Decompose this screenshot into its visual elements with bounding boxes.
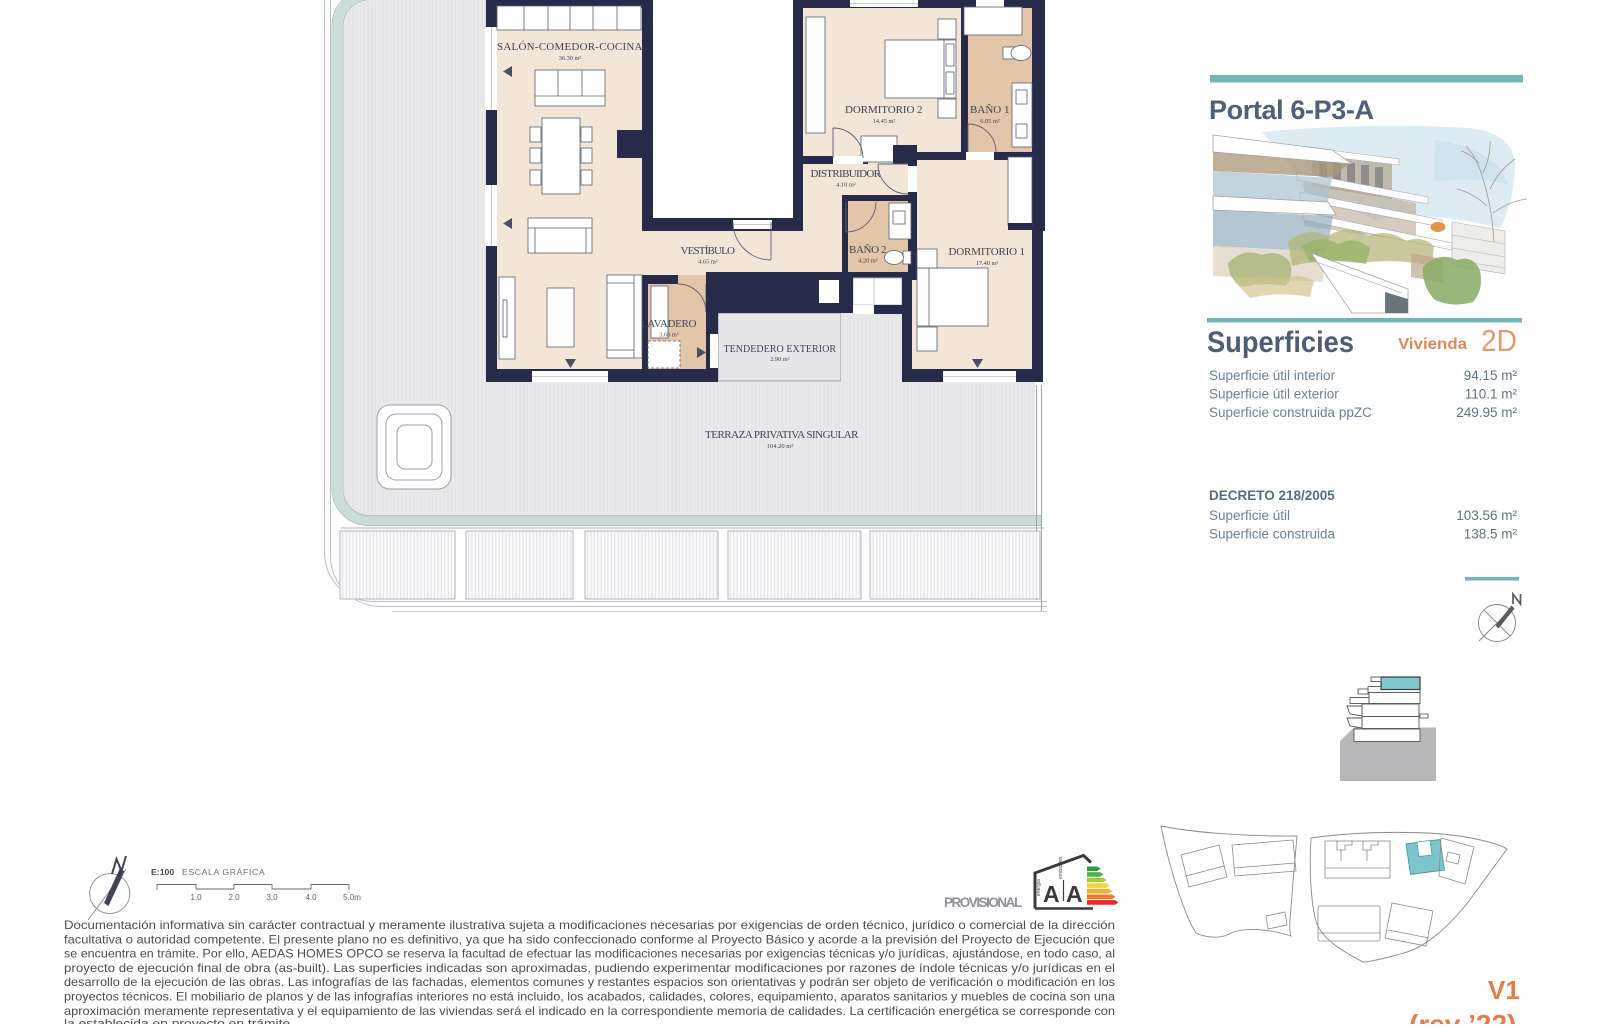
svg-text:TENDEDERO EXTERIOR: TENDEDERO EXTERIOR bbox=[724, 344, 837, 355]
svg-text:2.90 m²: 2.90 m² bbox=[770, 356, 789, 363]
svg-text:36.30 m²: 36.30 m² bbox=[559, 55, 582, 62]
svg-text:3.60 m²: 3.60 m² bbox=[659, 332, 678, 339]
svg-text:se encuentra en trámite. Por e: se encuentra en trámite. Por ello, AEDAS… bbox=[64, 947, 1115, 961]
svg-text:proyectos técnicos. El mobilia: proyectos técnicos. El mobiliario de pla… bbox=[64, 990, 1115, 1004]
svg-text:1.0: 1.0 bbox=[190, 893, 202, 902]
svg-text:Superficies: Superficies bbox=[1207, 326, 1354, 359]
svg-text:Superficie construida: Superficie construida bbox=[1209, 527, 1336, 542]
svg-text:(rev ’22): (rev ’22) bbox=[1409, 1009, 1516, 1024]
svg-text:249.95 m²: 249.95 m² bbox=[1456, 405, 1517, 420]
svg-text:PROVISIONAL: PROVISIONAL bbox=[944, 895, 1023, 910]
svg-text:TERRAZA PRIVATIVA SINGULAR: TERRAZA PRIVATIVA SINGULAR bbox=[705, 429, 859, 441]
svg-text:Superficie útil exterior: Superficie útil exterior bbox=[1209, 387, 1339, 402]
svg-text:proyecto de ejecución final de: proyecto de ejecución final de obra (as-… bbox=[64, 961, 1115, 975]
svg-text:103.56 m²: 103.56 m² bbox=[1456, 508, 1517, 523]
svg-text:facultativa o autoridad compet: facultativa o autoridad competente. El p… bbox=[64, 932, 1115, 946]
svg-text:DORMITORIO 2: DORMITORIO 2 bbox=[845, 104, 923, 116]
svg-text:desarrollo de la ejecución de: desarrollo de la ejecución de las obras.… bbox=[64, 975, 1115, 989]
svg-text:Portal 6-P3-A: Portal 6-P3-A bbox=[1209, 95, 1374, 125]
svg-text:A: A bbox=[1043, 881, 1060, 907]
svg-text:104.20 m²: 104.20 m² bbox=[767, 443, 794, 450]
svg-text:2D: 2D bbox=[1481, 323, 1517, 358]
svg-text:2.0: 2.0 bbox=[228, 893, 240, 902]
svg-text:110.1 m²: 110.1 m² bbox=[1465, 387, 1518, 402]
svg-text:Superficie útil: Superficie útil bbox=[1209, 508, 1290, 523]
svg-text:BAÑO 1: BAÑO 1 bbox=[970, 104, 1010, 116]
svg-text:138.5 m²: 138.5 m² bbox=[1464, 527, 1518, 542]
svg-text:6.05 m²: 6.05 m² bbox=[980, 118, 999, 125]
svg-text:energía: energía bbox=[1036, 879, 1042, 896]
svg-text:DORMITORIO 1: DORMITORIO 1 bbox=[949, 246, 1026, 258]
svg-text:4.10 m²: 4.10 m² bbox=[836, 182, 855, 189]
svg-text:A: A bbox=[1066, 881, 1083, 907]
svg-text:la establecida en proyecto en: la establecida en proyecto en trámite. bbox=[64, 1016, 294, 1024]
svg-text:ESCALA GRÁFICA: ESCALA GRÁFICA bbox=[182, 867, 265, 877]
svg-text:emisiones: emisiones bbox=[1058, 856, 1064, 879]
svg-text:SALÓN-COMEDOR-COCINA: SALÓN-COMEDOR-COCINA bbox=[497, 41, 643, 53]
svg-text:17.40 m²: 17.40 m² bbox=[976, 260, 999, 267]
svg-text:3.0: 3.0 bbox=[266, 893, 278, 902]
svg-text:4.65 m²: 4.65 m² bbox=[698, 259, 717, 266]
svg-text:Superficie construida ppZC: Superficie construida ppZC bbox=[1209, 405, 1372, 420]
svg-text:4.20 m²: 4.20 m² bbox=[858, 258, 877, 265]
svg-text:Superficie útil interior: Superficie útil interior bbox=[1209, 368, 1336, 383]
svg-text:V1: V1 bbox=[1488, 975, 1520, 1005]
svg-text:DECRETO 218/2005: DECRETO 218/2005 bbox=[1209, 488, 1335, 503]
svg-text:94.15 m²: 94.15 m² bbox=[1464, 368, 1518, 383]
svg-text:Vivienda: Vivienda bbox=[1398, 336, 1467, 353]
svg-text:4.0: 4.0 bbox=[305, 893, 317, 902]
svg-text:Documentación informativa sin: Documentación informativa sin carácter c… bbox=[64, 918, 1115, 932]
svg-text:LAVADERO: LAVADERO bbox=[641, 318, 697, 330]
svg-text:VESTÍBULO: VESTÍBULO bbox=[681, 245, 736, 257]
svg-text:5.0m: 5.0m bbox=[343, 893, 361, 902]
svg-text:DISTRIBUIDOR: DISTRIBUIDOR bbox=[811, 168, 882, 180]
svg-text:BAÑO 2: BAÑO 2 bbox=[849, 244, 887, 256]
svg-text:14.45 m²: 14.45 m² bbox=[873, 118, 896, 125]
svg-text:E:100: E:100 bbox=[151, 867, 174, 877]
